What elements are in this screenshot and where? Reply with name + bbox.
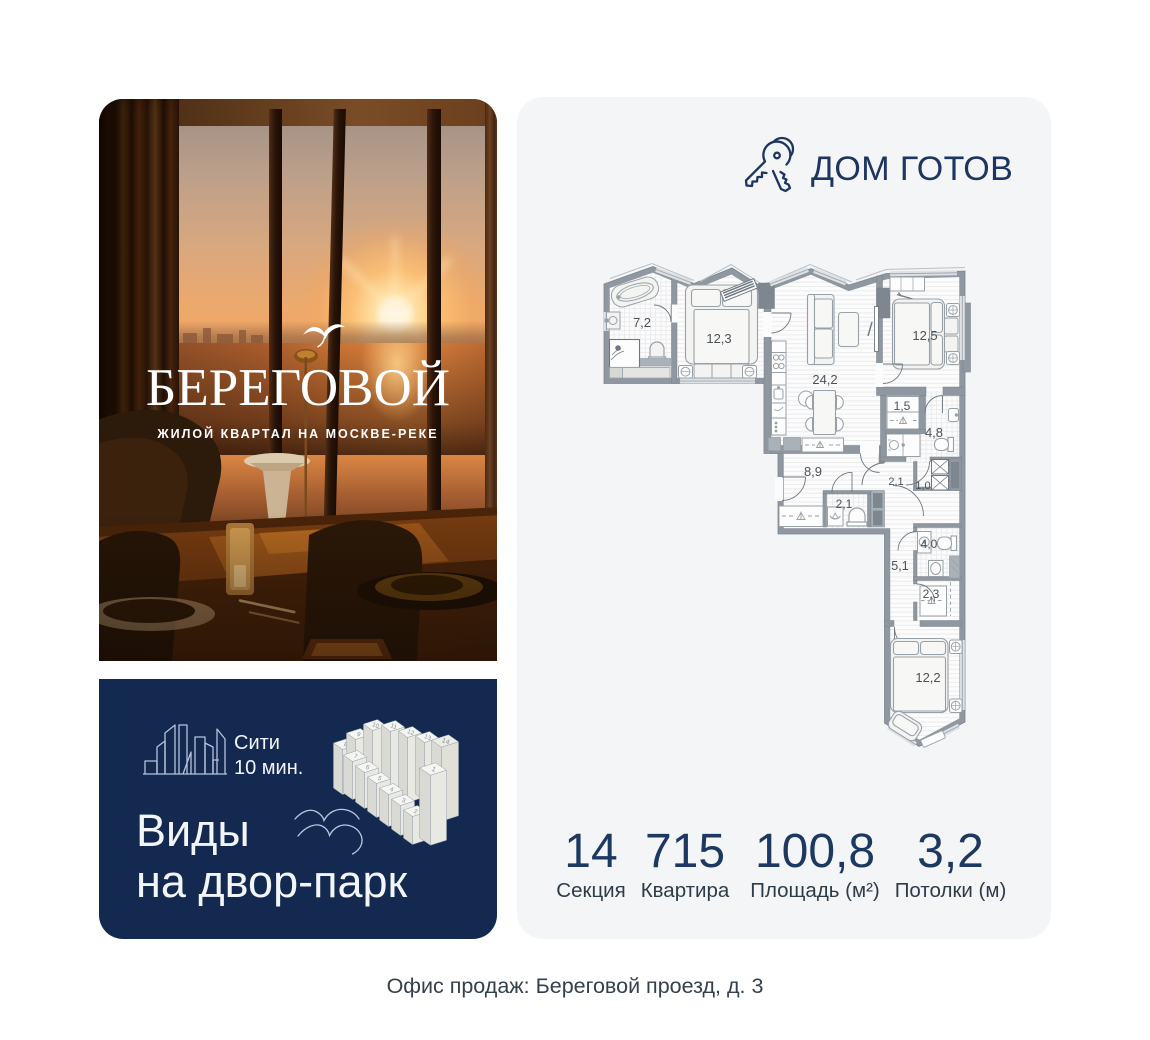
svg-text:12,3: 12,3 [706,331,731,346]
svg-text:2,3: 2,3 [923,587,940,601]
svg-text:12,5: 12,5 [912,328,937,343]
svg-text:2,1: 2,1 [836,497,853,511]
svg-text:2,1: 2,1 [888,476,903,488]
svg-text:7,2: 7,2 [633,315,651,330]
svg-text:8,9: 8,9 [804,464,822,479]
svg-text:1,0: 1,0 [915,480,930,492]
svg-text:12,2: 12,2 [915,670,940,685]
svg-text:1,5: 1,5 [894,399,911,413]
svg-text:5,1: 5,1 [891,559,908,573]
svg-text:4,0: 4,0 [921,537,938,551]
svg-text:24,2: 24,2 [812,372,837,387]
svg-text:4,8: 4,8 [925,425,943,440]
